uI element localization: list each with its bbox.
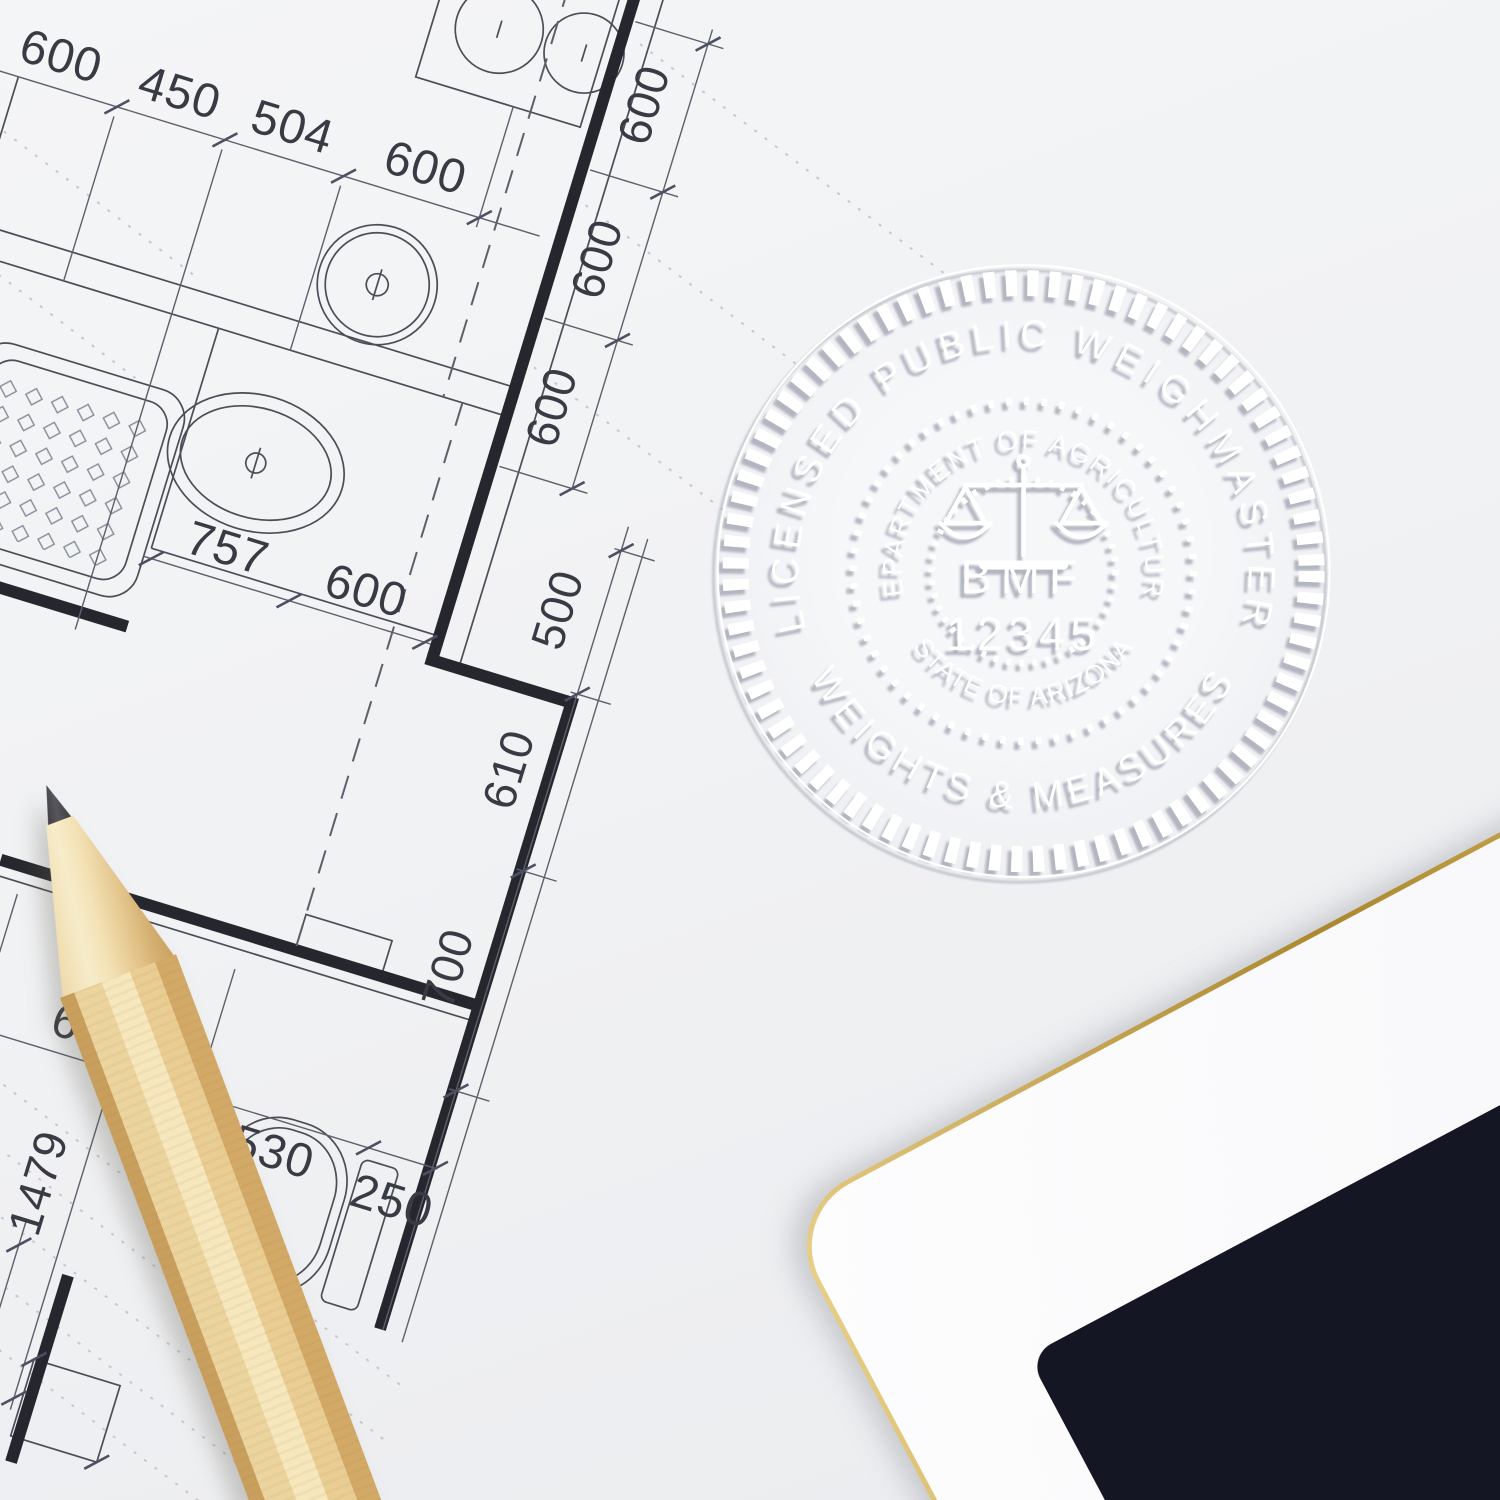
stove-burner-icon bbox=[444, 0, 554, 84]
tablet-screen bbox=[1028, 893, 1500, 1500]
dim-label: 600 bbox=[14, 19, 109, 94]
seal-license-number: 12345 bbox=[946, 607, 1102, 660]
dim-label: 600 bbox=[560, 213, 633, 304]
dim-label: 757 bbox=[180, 511, 275, 586]
seal-license-type: BMF bbox=[960, 550, 1086, 603]
dim-label: 600 bbox=[378, 131, 473, 206]
dim-label: 500 bbox=[521, 564, 594, 655]
dim-label: 600 bbox=[319, 554, 414, 629]
dim-label: 600 bbox=[515, 361, 588, 452]
photo-scene: 600 450 504 600 600 600 600 500 610 700 … bbox=[0, 0, 1500, 1500]
dim-label: 610 bbox=[472, 723, 545, 814]
dim-label: 504 bbox=[245, 90, 340, 165]
embossed-weighmaster-seal: LICENSED PUBLIC WEIGHMASTER WEIGHTS & ME… bbox=[692, 243, 1352, 903]
wall-lines bbox=[0, 0, 808, 1500]
dim-label: 450 bbox=[132, 56, 227, 131]
fixture-outlines bbox=[0, 0, 808, 1500]
